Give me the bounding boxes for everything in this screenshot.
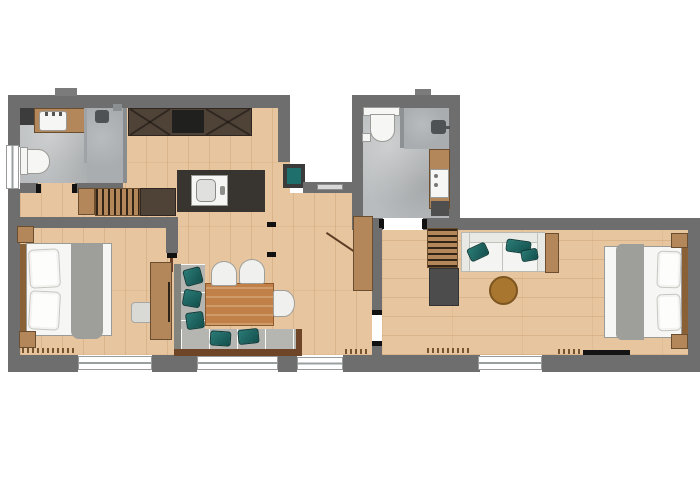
kitchen-cabinet-x-right: [206, 109, 250, 135]
threshold-hallway: [427, 348, 471, 353]
dining-chair: [211, 261, 237, 286]
door-jamb-bathroom1-left: [36, 184, 41, 193]
tv-board: [583, 350, 630, 355]
threshold-bedroom-left: [22, 348, 76, 353]
partition-bath1-kitchen: [123, 108, 127, 183]
bench-cushion: [182, 289, 203, 309]
wall-bedroom-door-stub: [166, 217, 178, 253]
faucet-icon: [52, 112, 55, 116]
faucet-icon: [59, 112, 62, 116]
wall-top-right-unit: [460, 218, 700, 230]
door-jamb-kitchen-east-bottom: [267, 252, 276, 257]
island-sink-bowl: [196, 179, 216, 202]
shower-divider-left: [84, 108, 87, 163]
threshold-corridor: [345, 349, 369, 354]
storage-box-dark: [20, 108, 34, 125]
hallway-cabinet: [429, 268, 459, 306]
wall-pilaster-top-left: [55, 88, 77, 96]
nightstand-left-top: [17, 226, 34, 243]
toilet-bowl-right: [370, 114, 395, 142]
wall-left-upper: [8, 95, 20, 147]
wall-bottom-1: [8, 355, 78, 372]
service-shaft-core: [287, 168, 301, 184]
cooktop: [172, 110, 204, 133]
window-bottom-dining: [197, 356, 278, 370]
bed-right-pillow: [656, 251, 681, 289]
island-faucet-icon: [220, 186, 225, 195]
wall-corridor-stub: [372, 346, 382, 355]
bench-front-frame: [174, 349, 302, 356]
bed-left-pillow: [28, 248, 61, 289]
bed-left-runner: [71, 243, 103, 339]
dining-table: [205, 283, 274, 326]
window-left-wall: [6, 145, 19, 189]
wall-right: [688, 218, 700, 372]
sofa-armrest-right: [537, 233, 545, 271]
shower-arm: [444, 126, 450, 129]
round-coffee-table: [489, 276, 518, 305]
wall-bottom-2: [152, 355, 197, 372]
wall-bottom-5: [542, 355, 697, 372]
washer-knob: [434, 183, 438, 187]
washer-knob: [434, 174, 438, 178]
bedroom-wardrobe-handle: [168, 282, 170, 322]
bed-left-pillow: [28, 290, 61, 331]
wall-bottom-4: [343, 355, 480, 372]
bed-right-pillow: [656, 294, 681, 332]
floor-plan: [0, 0, 700, 500]
door-jamb-corridor-bottom: [372, 341, 382, 346]
window-bottom-corridor: [297, 357, 343, 370]
nightstand-right-top: [671, 233, 688, 248]
window-kitchen-pass: [317, 184, 343, 190]
door-jamb-bathroom1-right: [72, 184, 77, 193]
toilet-paper-holder: [362, 133, 371, 142]
washing-machine: [430, 169, 449, 198]
hanger-wardrobe: [95, 188, 140, 216]
dining-chair: [239, 259, 265, 284]
window-bottom-living: [478, 356, 542, 370]
shower-head-icon: [95, 110, 109, 123]
nightstand-left-bottom: [19, 331, 36, 348]
hall-cabinet-small: [78, 188, 95, 215]
faucet-icon: [45, 112, 48, 116]
toilet-bowl-left: [27, 149, 50, 174]
sofa-seat-split: [502, 242, 503, 271]
bench-cushion: [237, 328, 259, 345]
door-jamb-kitchen-east-top: [267, 222, 276, 227]
laundry-basket: [431, 201, 449, 216]
door-jamb-corridor-top: [372, 310, 382, 315]
wall-bathroom2-left: [352, 95, 363, 218]
kitchen-cabinet-x-left: [130, 109, 170, 135]
bench-back-frame: [174, 264, 181, 355]
sofa-backrest: [462, 233, 544, 243]
wall-unit1-right-upper: [278, 95, 290, 162]
built-in-closet: [353, 216, 373, 291]
coat-rack: [427, 228, 458, 268]
wall-bathroom2-right: [449, 108, 460, 230]
dining-chair: [273, 290, 295, 317]
bench-cushion: [185, 311, 205, 330]
nightstand-right-bottom: [671, 334, 688, 349]
threshold-living: [558, 349, 582, 354]
wall-top-left-unit: [8, 95, 290, 108]
shower-control: [113, 104, 122, 111]
wall-bottom-3: [278, 355, 297, 372]
sofa-console: [545, 233, 559, 273]
bench-cushion: [210, 330, 232, 346]
hall-cabinet-x: [140, 188, 176, 216]
window-bottom-bedroom-left: [78, 356, 152, 370]
wall-corridor-vertical: [372, 228, 382, 312]
bench-end-frame: [296, 329, 302, 355]
bed-right-runner: [616, 244, 644, 340]
